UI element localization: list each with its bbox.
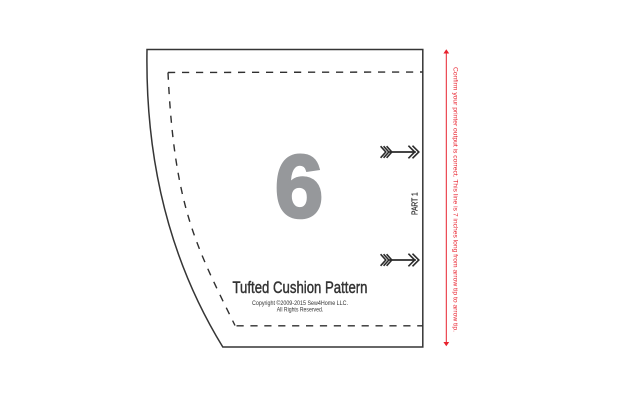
svg-text:PART 1: PART 1	[410, 192, 420, 215]
svg-text:Confirm your printer output is: Confirm your printer output is correct. …	[451, 67, 458, 332]
svg-text:6: 6	[275, 136, 324, 236]
svg-text:All Rights Reserved.: All Rights Reserved.	[277, 306, 324, 313]
svg-text:Tufted Cushion Pattern: Tufted Cushion Pattern	[233, 279, 368, 297]
